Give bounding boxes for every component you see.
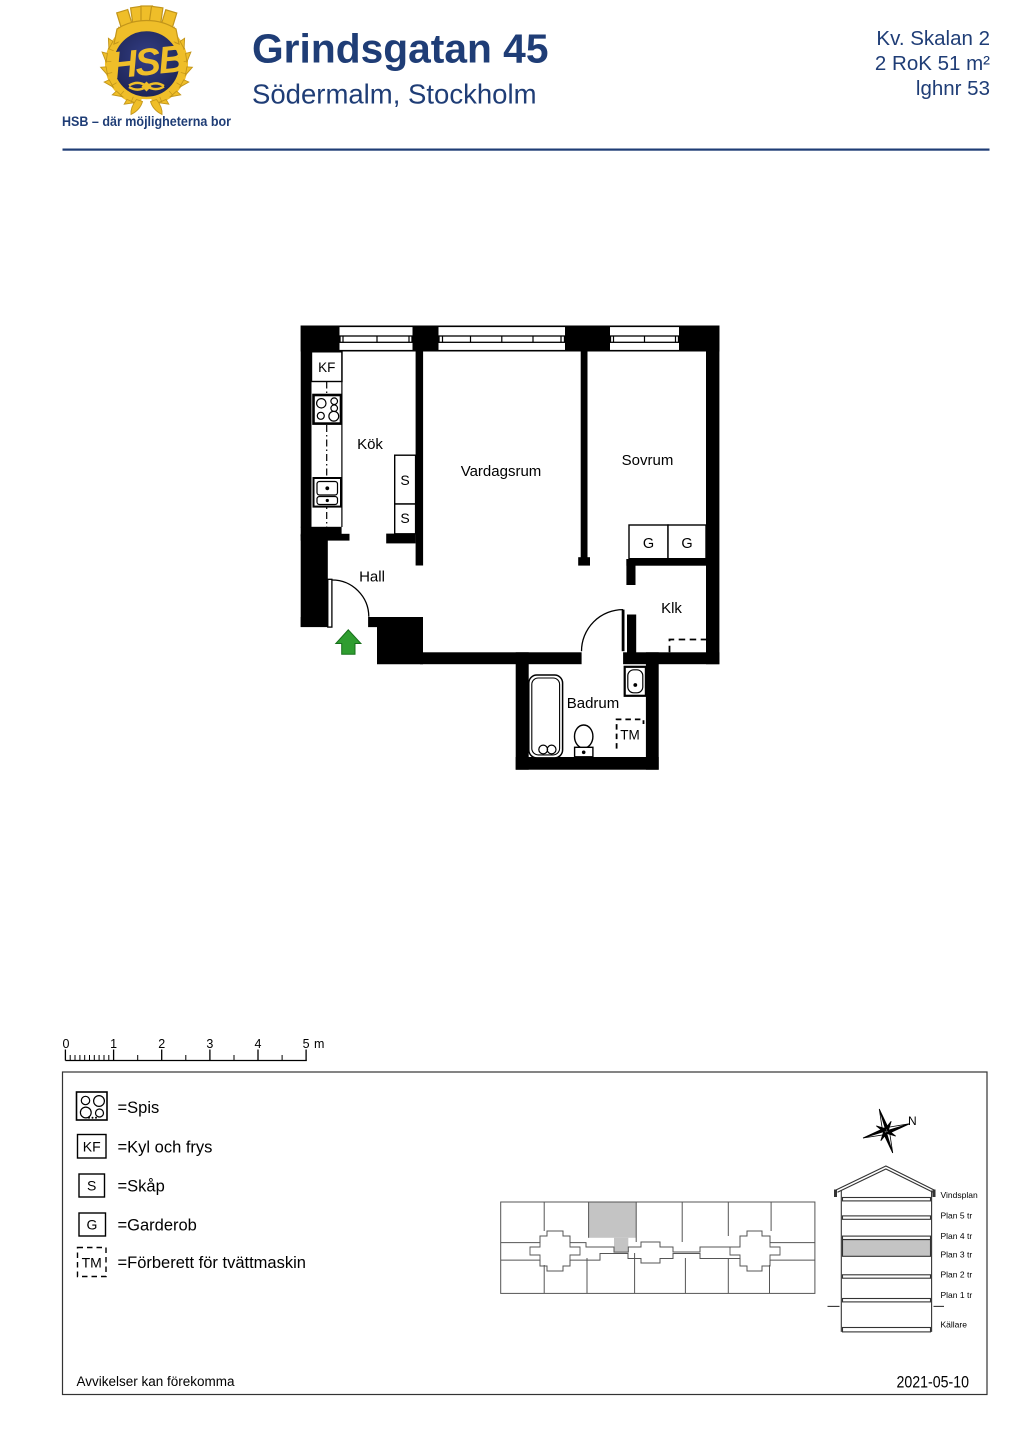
svg-text:Plan 5 tr: Plan 5 tr xyxy=(941,1211,973,1221)
svg-text:TM: TM xyxy=(620,728,640,743)
svg-text:KF: KF xyxy=(318,360,335,375)
svg-text:Källare: Källare xyxy=(941,1320,968,1330)
svg-text:=Garderob: =Garderob xyxy=(118,1217,197,1235)
svg-text:HSB: HSB xyxy=(108,38,188,88)
svg-text:3: 3 xyxy=(206,1037,213,1051)
svg-text:0: 0 xyxy=(63,1037,70,1051)
svg-text:=Spis: =Spis xyxy=(118,1099,160,1117)
svg-text:HSB – där möjligheterna bor: HSB – där möjligheterna bor xyxy=(62,114,232,129)
svg-text:Södermalm, Stockholm: Södermalm, Stockholm xyxy=(252,79,537,110)
svg-text:G: G xyxy=(681,536,692,552)
svg-text:S: S xyxy=(87,1178,96,1194)
svg-text:Avvikelser kan förekomma: Avvikelser kan förekomma xyxy=(77,1374,236,1389)
svg-text:2021-05-10: 2021-05-10 xyxy=(897,1374,970,1392)
svg-text:5: 5 xyxy=(303,1037,310,1051)
svg-text:Hall: Hall xyxy=(359,569,385,586)
svg-text:=Skåp: =Skåp xyxy=(118,1178,165,1196)
svg-text:Klk: Klk xyxy=(661,600,682,617)
svg-text:N: N xyxy=(908,1114,917,1128)
svg-text:Plan 2 tr: Plan 2 tr xyxy=(941,1270,973,1280)
svg-text:4: 4 xyxy=(255,1037,262,1051)
svg-text:=Kyl och frys: =Kyl och frys xyxy=(118,1139,213,1157)
svg-text:Plan 3 tr: Plan 3 tr xyxy=(941,1250,973,1260)
svg-text:=Förberett för tvättmaskin: =Förberett för tvättmaskin xyxy=(118,1254,306,1272)
svg-text:S: S xyxy=(400,472,409,488)
svg-text:2 RoK 51 m²: 2 RoK 51 m² xyxy=(875,52,990,75)
svg-text:KF: KF xyxy=(83,1139,101,1155)
svg-text:Badrum: Badrum xyxy=(567,695,620,712)
svg-text:Kv. Skalan 2: Kv. Skalan 2 xyxy=(876,27,990,50)
svg-text:Vardagsrum: Vardagsrum xyxy=(461,463,542,480)
svg-text:TM: TM xyxy=(82,1255,102,1271)
svg-text:G: G xyxy=(87,1217,98,1233)
svg-text:1: 1 xyxy=(110,1037,117,1051)
svg-text:2: 2 xyxy=(158,1037,165,1051)
svg-text:Grindsgatan 45: Grindsgatan 45 xyxy=(252,26,549,72)
svg-text:Sovrum: Sovrum xyxy=(622,452,674,469)
svg-text:Plan 4 tr: Plan 4 tr xyxy=(941,1231,973,1241)
svg-text:m: m xyxy=(314,1037,324,1051)
svg-text:G: G xyxy=(643,536,654,552)
svg-text:Kök: Kök xyxy=(357,436,383,453)
svg-text:lghnr 53: lghnr 53 xyxy=(916,77,990,100)
svg-text:S: S xyxy=(400,510,409,526)
svg-text:Vindsplan: Vindsplan xyxy=(941,1190,978,1200)
svg-text:Plan 1 tr: Plan 1 tr xyxy=(941,1290,973,1300)
